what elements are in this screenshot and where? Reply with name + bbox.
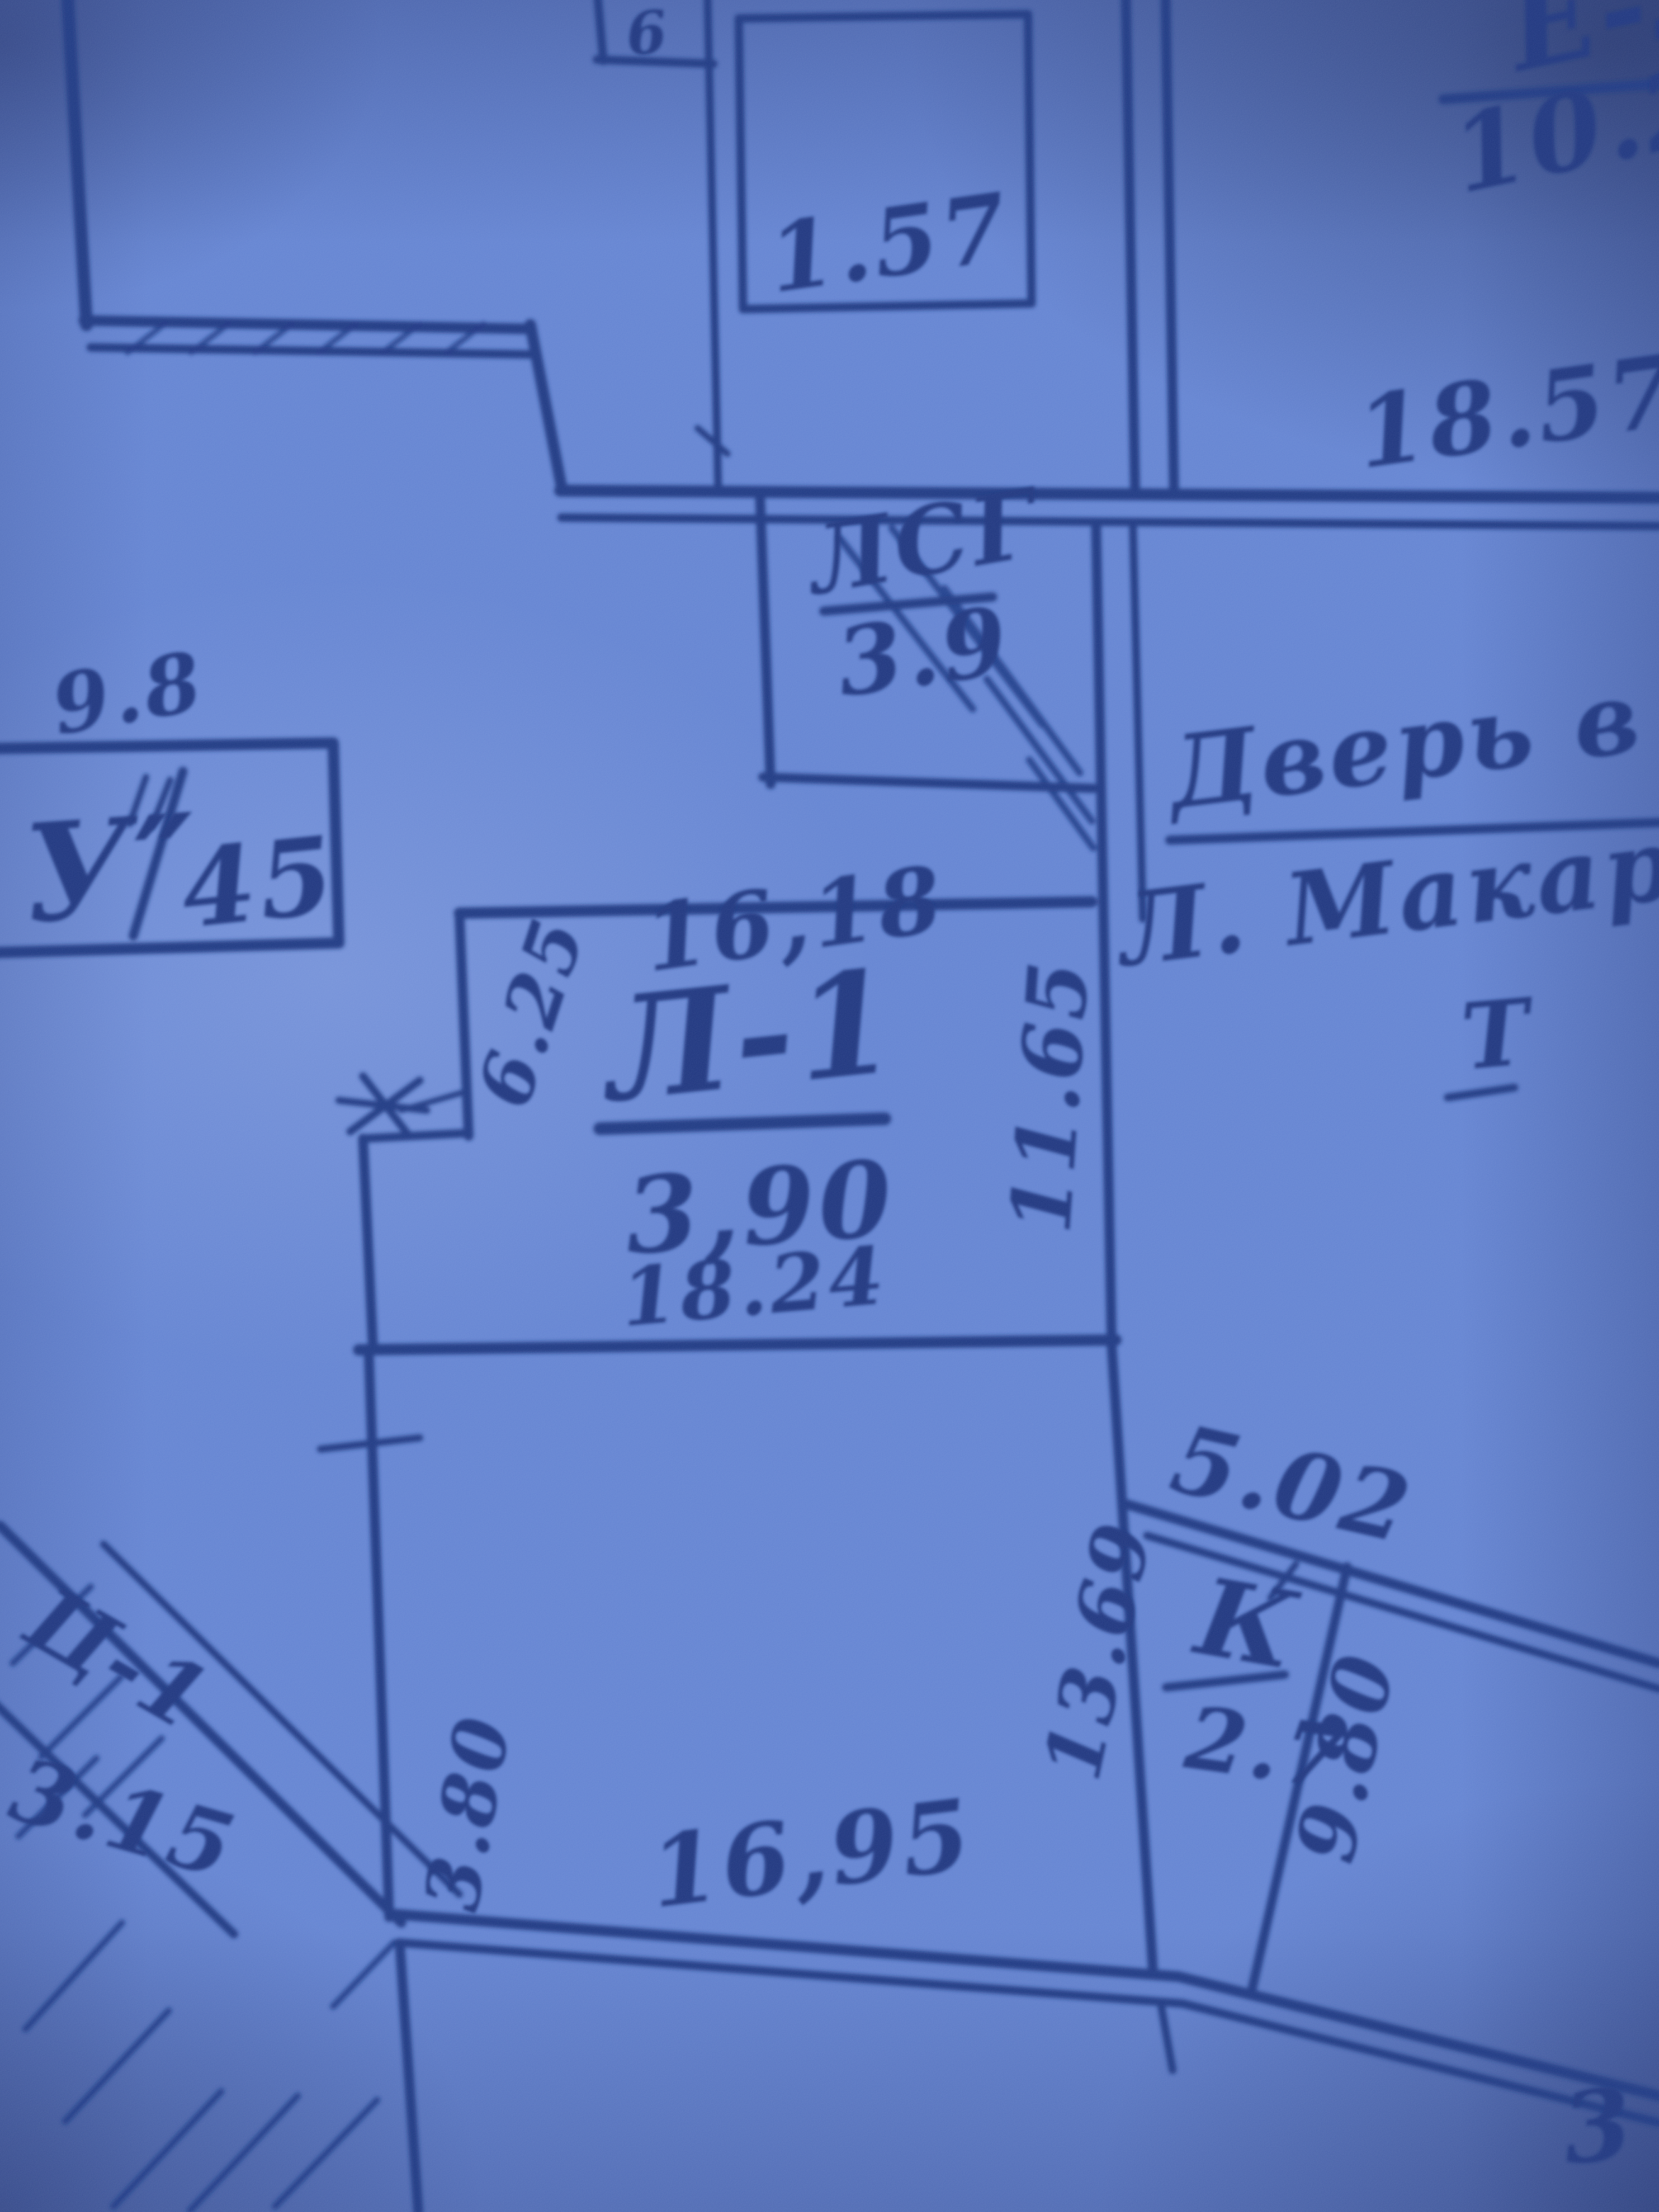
dimension-5-02: 5.02 — [1162, 1404, 1423, 1565]
room-area-top: 1.57 — [762, 172, 1017, 315]
dimension-13-69: 13.69 — [1026, 1512, 1170, 1787]
bottom-walls — [396, 1914, 1659, 2212]
dimension-16-95: 16,95 — [644, 1776, 980, 1930]
dimension-6-25: 6.25 — [460, 906, 603, 1117]
top-left-step-walls — [67, 0, 562, 491]
floor-plan-drawing: Е-3 10.21 18.57 1.57 6 ЛСГ 3.9 9.8 У″ 45… — [0, 0, 1659, 2212]
dimension-9-80: 9.80 — [1277, 1644, 1414, 1870]
dimension-11-65: 11.65 — [993, 955, 1108, 1236]
blueprint-photo: Е-3 10.21 18.57 1.57 6 ЛСГ 3.9 9.8 У″ 45… — [0, 0, 1659, 2212]
room-area-c1: 3.15 — [0, 1738, 247, 1899]
dimension-18-57: 18.57 — [1350, 332, 1659, 491]
room-area-u: 45 — [175, 812, 342, 953]
star-mark — [339, 1076, 465, 1136]
door-note-line1: Дверь в о — [1158, 646, 1659, 833]
top-box-label: 6 — [623, 0, 673, 69]
room-label-u: У″ — [18, 783, 206, 954]
shaft-area: 3.9 — [830, 586, 1017, 719]
room-label-l1: Л-1 — [591, 938, 907, 1135]
dimension-9-8: 9.8 — [45, 633, 211, 754]
dimension-3-80: 3.80 — [407, 1708, 528, 1918]
corner-dimension-3: 3 — [1557, 2065, 1641, 2187]
room-label-k: К — [1185, 1553, 1309, 1694]
t-mark: Т — [1458, 978, 1540, 1090]
main-horizontal-wall — [560, 491, 1659, 526]
